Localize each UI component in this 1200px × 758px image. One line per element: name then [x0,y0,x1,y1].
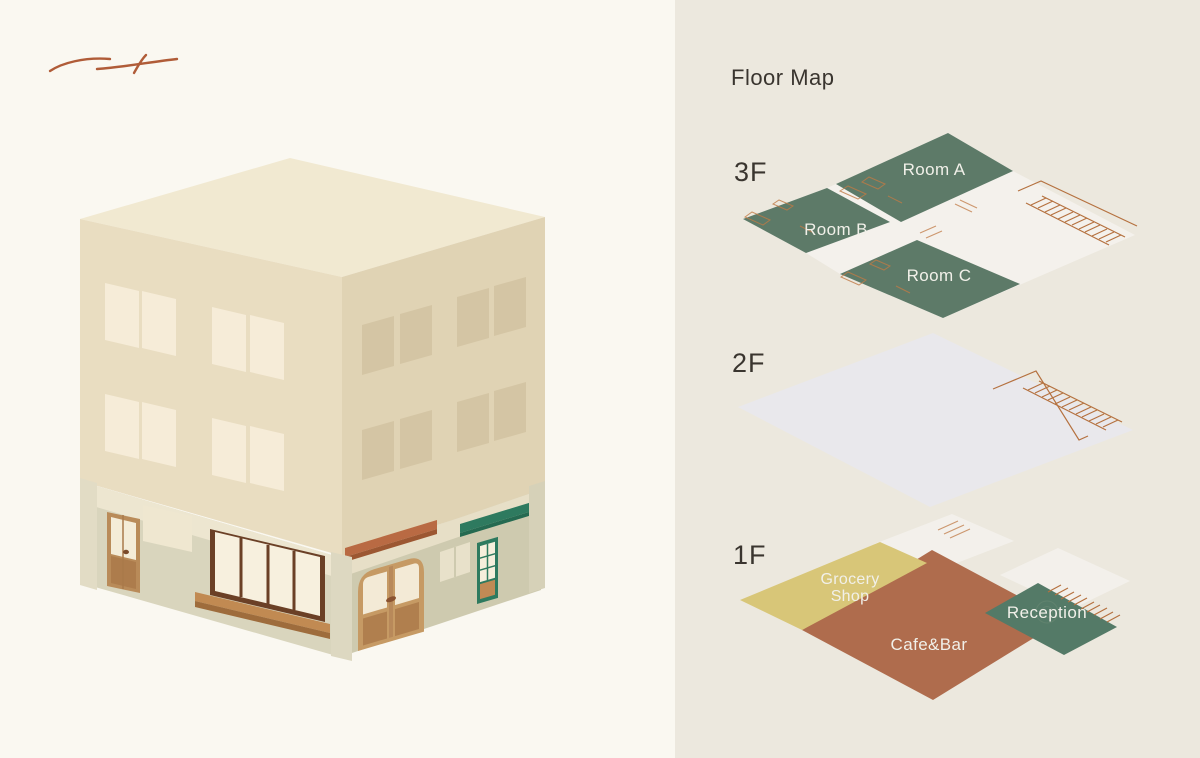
room-label-cafe-bar: Cafe&Bar [891,635,968,655]
floor-label-1f: 1F [733,540,767,571]
room-label-room-b: Room B [804,220,868,240]
room-label-grocery-shop: Grocery Shop [821,571,880,605]
corner-pillar-right [529,481,545,593]
room-label-reception: Reception [1007,603,1087,623]
corner-pillar-left [80,478,97,590]
floor-2f-base [738,333,1133,507]
floor-plan-2f [738,333,1133,507]
floor-label-2f: 2F [732,348,766,379]
poster: Floor Map 3F 2F 1F Room A Room B Room C … [0,0,1200,758]
entrance-door [107,512,140,593]
grocery-line-1: Grocery [821,571,880,588]
scene-canvas [0,0,1200,758]
room-label-room-a: Room A [903,160,966,180]
grocery-line-2: Shop [821,588,880,605]
brush-squiggle-decoration [50,55,177,73]
floor-label-3f: 3F [734,157,768,188]
corner-pillar-front [331,552,352,661]
floor-map-title: Floor Map [731,65,835,91]
door-knob [123,550,129,554]
green-paned-door [477,537,498,604]
building-illustration [80,158,545,661]
room-label-room-c: Room C [907,266,972,286]
